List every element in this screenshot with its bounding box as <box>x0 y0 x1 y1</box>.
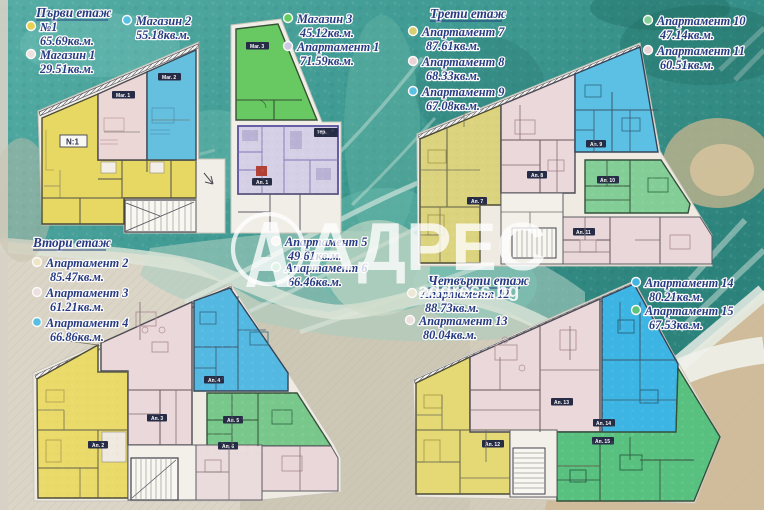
svg-text:АДРЕС: АДРЕС <box>306 209 546 285</box>
svg-text:address.bg: address.bg <box>418 281 519 302</box>
